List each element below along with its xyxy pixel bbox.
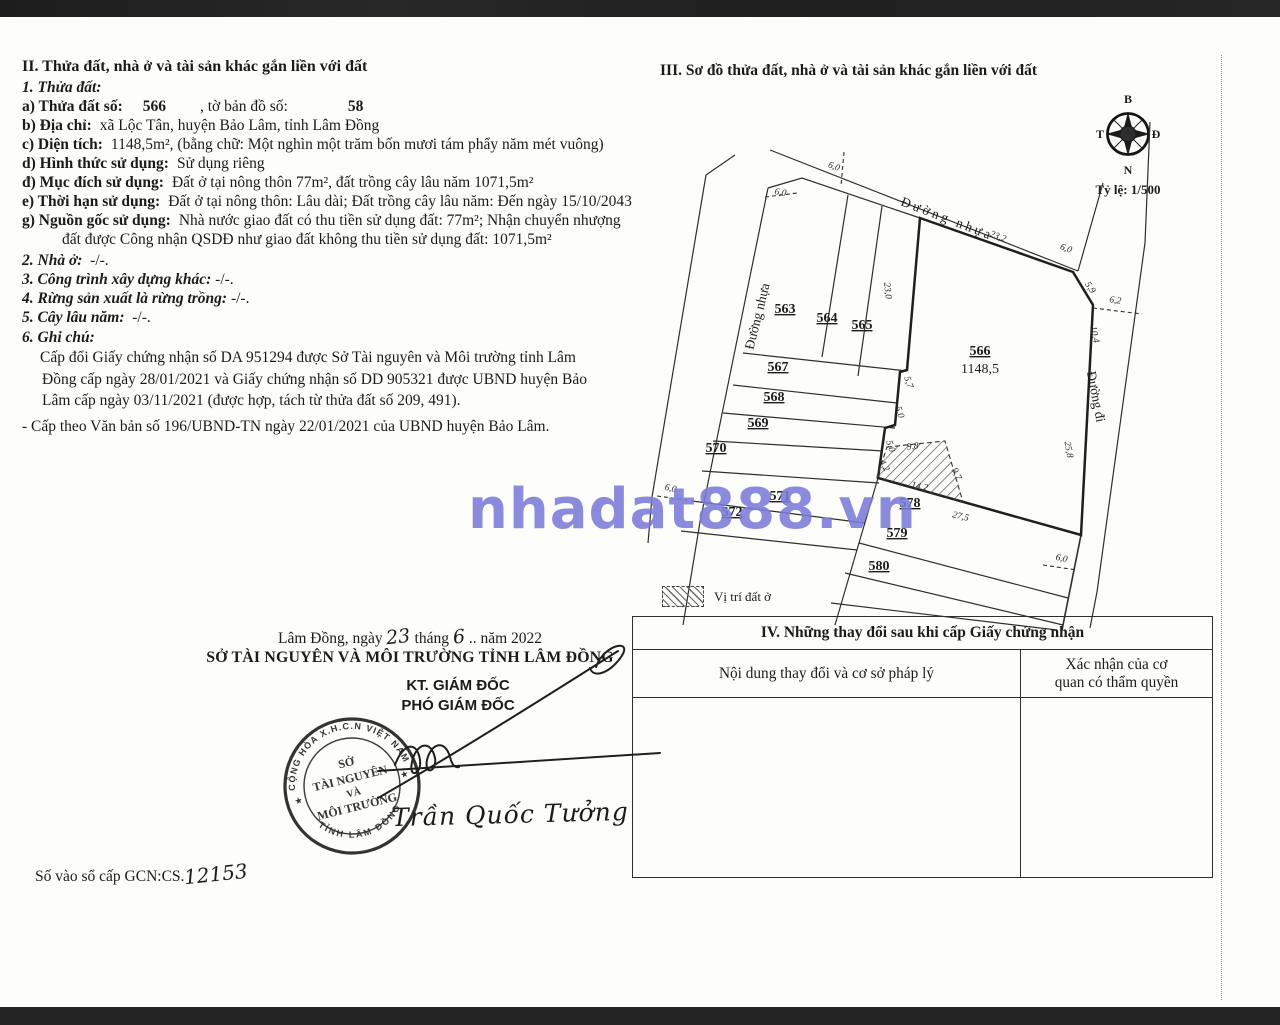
parcel-label-580: 580: [869, 559, 890, 574]
tick-road-width-right: [1093, 308, 1142, 314]
section-2-land-details: II. Thửa đất, nhà ở và tài sản khác gắn …: [22, 57, 636, 437]
dim-5-9: 5,9: [1082, 280, 1097, 296]
line-house: 2. Nhà ở: -/-.: [22, 251, 636, 270]
line-production-forest: 4. Rừng sản xuất là rừng trồng: -/-.: [22, 289, 636, 308]
sub-1-thua-dat: 1. Thửa đất:: [22, 78, 636, 97]
divider-578-579: [859, 543, 1068, 598]
legend-hatch-swatch: [662, 586, 704, 607]
dim-6-0-se: 6,0: [1055, 553, 1069, 565]
dim-6-0-left-top: 6,0: [774, 187, 788, 199]
signature-top-loop: [590, 646, 624, 674]
table-4-col1-header: Nội dung thay đổi và cơ sở pháp lý: [633, 650, 1021, 697]
section-3-heading: III. Sơ đồ thửa đất, nhà ở và tài sản kh…: [660, 62, 1037, 80]
tick-bottom-right: [1043, 565, 1077, 570]
divider-564-565: [858, 206, 882, 376]
signature-long-stroke: [378, 651, 618, 798]
parcel-label-570: 570: [706, 441, 727, 456]
table-4-empty-body: [633, 698, 1212, 877]
line-use-origin: g) Nguồn gốc sử dụng:Nhà nước giao đất c…: [22, 211, 636, 249]
table-4-body-col1: [633, 698, 1021, 877]
section-2-heading: II. Thửa đất, nhà ở và tài sản khác gắn …: [22, 57, 636, 76]
dim-9-8: 9,8: [906, 441, 919, 452]
parcel-label-569: 569: [748, 416, 769, 431]
table-4-header-row: Nội dung thay đổi và cơ sở pháp lý Xác n…: [633, 650, 1212, 698]
table-4-body-col2: [1021, 698, 1212, 877]
line-area: c) Diện tích:1148,5m², (bằng chữ: Một ng…: [22, 135, 636, 154]
road-top-lower-edge: [768, 178, 920, 218]
table-4-col2-header: Xác nhận của cơ quan có thẩm quyền: [1021, 650, 1212, 697]
divider-567-568: [733, 385, 897, 403]
line-use-term: e) Thời hạn sử dụng:Đất ở tại nông thôn:…: [22, 192, 636, 211]
parcel-label-568: 568: [764, 390, 785, 405]
dim-25-8: 25,8: [1062, 441, 1075, 459]
parcel-label-563: 563: [775, 302, 796, 317]
stamp-star-left: ★: [294, 795, 304, 806]
scanned-land-certificate-page: II. Thửa đất, nhà ở và tài sản khác gắn …: [0, 0, 1280, 1025]
parcel-label-566: 566: [970, 344, 991, 359]
line-perennial-trees: 5. Cây lâu năm: -/-.: [22, 308, 636, 327]
road-right-branch: [1078, 183, 1103, 271]
divider-569-570: [713, 441, 883, 451]
handwritten-book-number: 12153: [183, 859, 249, 890]
note-2: - Cấp theo Văn bản số 196/UBND-TN ngày 2…: [22, 416, 582, 438]
note-1: Cấp đổi Giấy chứng nhận số DA 951294 đượ…: [22, 347, 602, 412]
divider-563-564: [822, 195, 848, 357]
scan-border-bottom: [0, 1007, 1280, 1025]
parcel-label-564: 564: [817, 311, 838, 326]
dim-6-0-ne: 6,0: [1058, 242, 1073, 256]
line-address: b) Địa chỉ:xã Lộc Tân, huyện Bảo Lâm, tỉ…: [22, 116, 636, 135]
dim-5-7: 5,7: [901, 375, 915, 391]
scan-border-top: [0, 0, 1280, 17]
watermark: nhadat888.vn: [468, 477, 917, 542]
road-label-top: Đường nhựa: [899, 194, 996, 243]
dim-10-4: 10,4: [1087, 325, 1100, 344]
map-sheet-value: 58: [348, 98, 364, 115]
parcel-label-567: 567: [768, 360, 789, 375]
dim-27-5: 27,5: [951, 510, 970, 524]
section-4-changes-table: IV. Những thay đổi sau khi cấp Giấy chứn…: [632, 616, 1213, 878]
parcel-number-value: 566: [143, 98, 166, 115]
dim-23-0: 23,0: [881, 282, 893, 300]
dim-5-0-a: 5,0: [892, 405, 905, 420]
cadastral-map: Đường nhựa Đường nhựa Đường đi 563 564 5…: [645, 95, 1225, 630]
parcel-area-566: 1148,5: [961, 362, 999, 377]
road-left-inner-edge: [683, 188, 768, 625]
line-use-purpose: đ) Mục đích sử dụng:Đất ở tại nông thôn …: [22, 173, 636, 192]
line-other-constructions: 3. Công trình xây dựng khác: -/-.: [22, 270, 636, 289]
parcel-label-565: 565: [852, 318, 873, 333]
legend-label: Vị trí đất ở: [714, 589, 771, 605]
table-4-heading: IV. Những thay đổi sau khi cấp Giấy chứn…: [633, 617, 1212, 650]
handwritten-signature: [350, 615, 690, 835]
line-notes-heading: 6. Ghi chú:: [22, 328, 636, 347]
certificate-book-number: Số vào sổ cấp GCN:CS.12153: [35, 862, 248, 886]
line-use-form: d) Hình thức sử dụng:Sử dụng riêng: [22, 154, 636, 173]
map-legend: Vị trí đất ở: [662, 586, 771, 607]
tick-top: [841, 152, 844, 186]
line-parcel-number: a) Thửa đất số:566, tờ bản đồ số:58: [22, 97, 636, 116]
dim-6-2: 6,2: [1109, 295, 1122, 307]
dim-6-0-top: 6,0: [826, 160, 841, 174]
